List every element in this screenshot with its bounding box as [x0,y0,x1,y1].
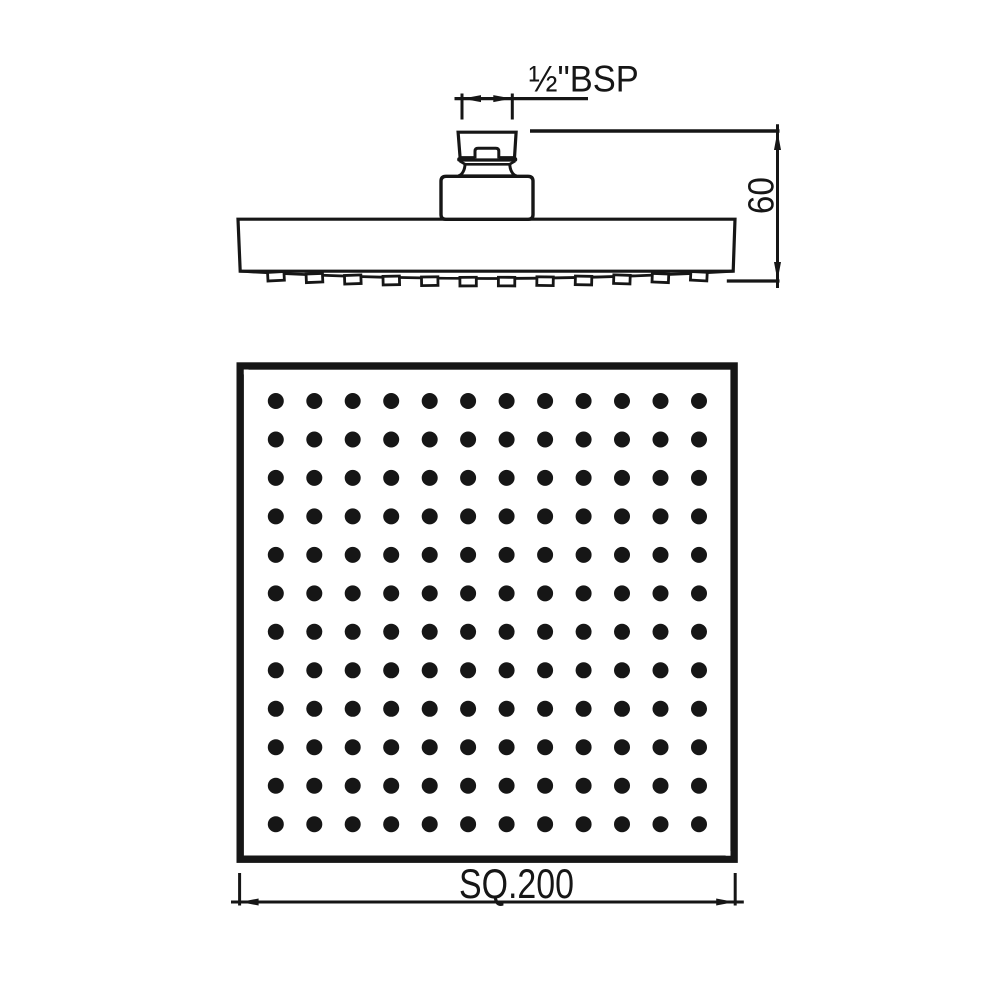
svg-text:½"BSP: ½"BSP [529,58,639,99]
svg-text:60: 60 [741,177,782,214]
svg-text:SQ.200: SQ.200 [459,860,574,907]
